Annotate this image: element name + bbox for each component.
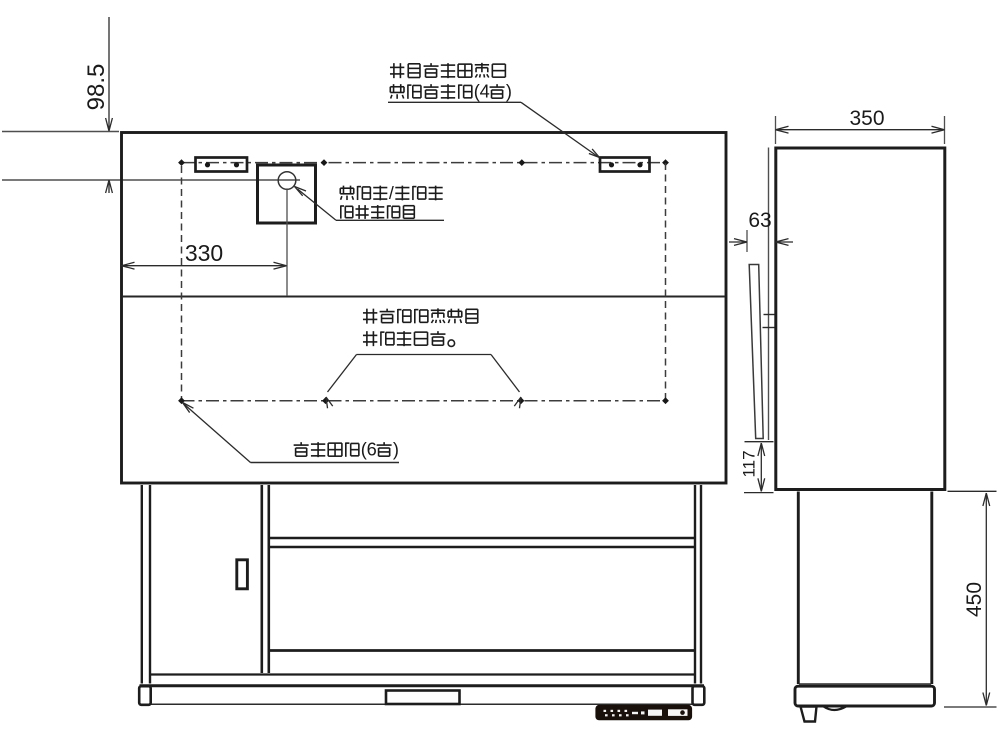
svg-text:4: 4 [480,81,490,102]
svg-text:117: 117 [740,450,759,477]
svg-text:): ) [506,81,512,102]
svg-text:/: / [389,183,394,203]
svg-text:98.5: 98.5 [83,64,110,111]
svg-text:350: 350 [849,107,884,130]
svg-text:6: 6 [367,439,377,460]
svg-text:63: 63 [748,209,771,232]
svg-text:450: 450 [963,582,986,617]
svg-text:): ) [393,439,399,460]
svg-text:330: 330 [185,240,223,266]
